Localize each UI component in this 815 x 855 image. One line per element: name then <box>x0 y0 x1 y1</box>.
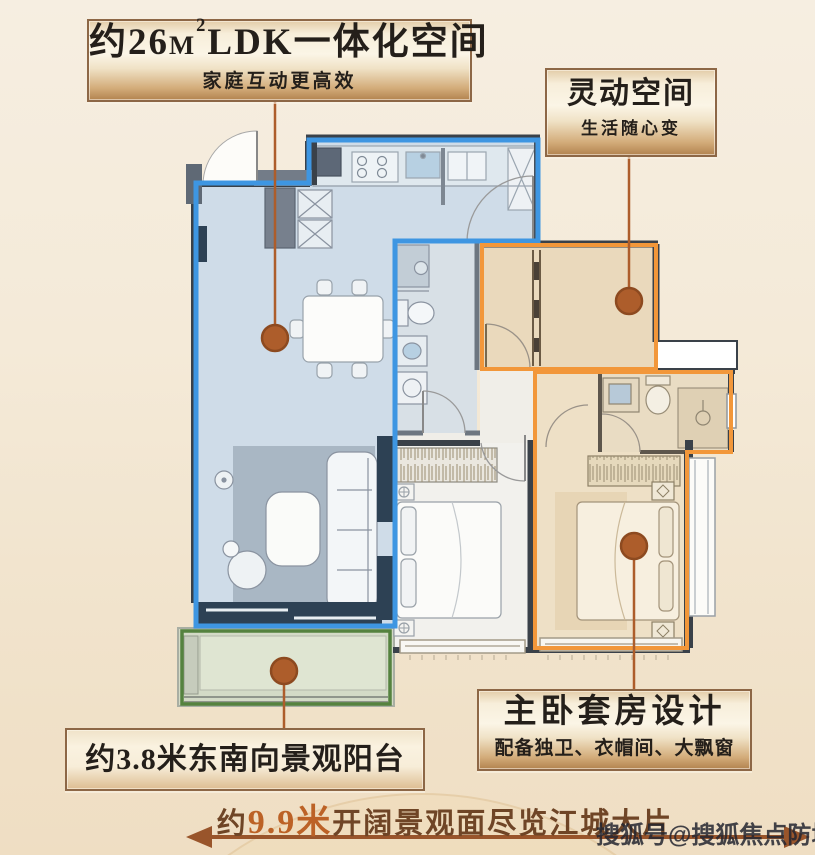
callout-flexible-title: 灵动空间 <box>547 77 715 112</box>
callout-balcony: 约3.8米东南向景观阳台 <box>65 728 425 791</box>
callout-master-subtitle: 配备独卫、衣帽间、大飘窗 <box>479 733 750 760</box>
dining-table <box>303 296 383 362</box>
dimension-value: 9.9米 <box>248 804 333 841</box>
dimension-prefix: 约 <box>217 808 248 840</box>
side-table <box>223 541 239 557</box>
dining-chair <box>317 363 332 378</box>
bay-window <box>689 458 715 616</box>
ac-platform <box>657 341 737 369</box>
sofa <box>327 452 377 610</box>
living-room-furniture <box>215 446 377 610</box>
master-shower-fill <box>678 388 728 448</box>
watermark-text: 搜狐号@搜狐焦点防城港站 <box>596 815 815 850</box>
arrow-left-head <box>186 826 212 848</box>
shower-head <box>415 262 428 275</box>
toilet <box>408 302 434 324</box>
callout-ldk-title: 约26M2LDK一体化空间 <box>89 22 470 65</box>
entry-door <box>203 131 257 185</box>
floorplan-poster: 约26M2LDK一体化空间 家庭互动更高效 灵动空间 生活随心变 主卧套房设计 … <box>0 0 815 855</box>
dining-chair <box>317 280 332 295</box>
master-marker-dot <box>621 533 647 559</box>
callout-balcony-title: 约3.8米东南向景观阳台 <box>67 730 423 789</box>
dimension-ticks <box>410 655 668 660</box>
stove <box>352 152 398 182</box>
callout-master-suite: 主卧套房设计 配备独卫、衣帽间、大飘窗 <box>477 689 752 771</box>
callout-ldk-space: 约26M2LDK一体化空间 家庭互动更高效 <box>87 19 472 102</box>
ldk-marker-dot <box>262 325 288 351</box>
coffee-table <box>266 492 320 566</box>
flexible-marker-dot <box>616 288 642 314</box>
balcony-marker-dot <box>271 658 297 684</box>
callout-master-title: 主卧套房设计 <box>479 694 750 732</box>
dining-chair <box>290 320 304 338</box>
dining-chair <box>352 363 367 378</box>
callout-ldk-subtitle: 家庭互动更高效 <box>89 66 470 93</box>
callout-flexible-space: 灵动空间 生活随心变 <box>545 68 717 157</box>
living-south-window-band <box>196 602 382 626</box>
master-toilet <box>646 386 670 414</box>
callout-flexible-subtitle: 生活随心变 <box>547 114 715 139</box>
corridor-fill-2 <box>480 370 535 436</box>
dining-chair <box>352 280 367 295</box>
middle-bedroom-furniture <box>394 448 501 636</box>
flexible-room-partition <box>533 250 540 366</box>
